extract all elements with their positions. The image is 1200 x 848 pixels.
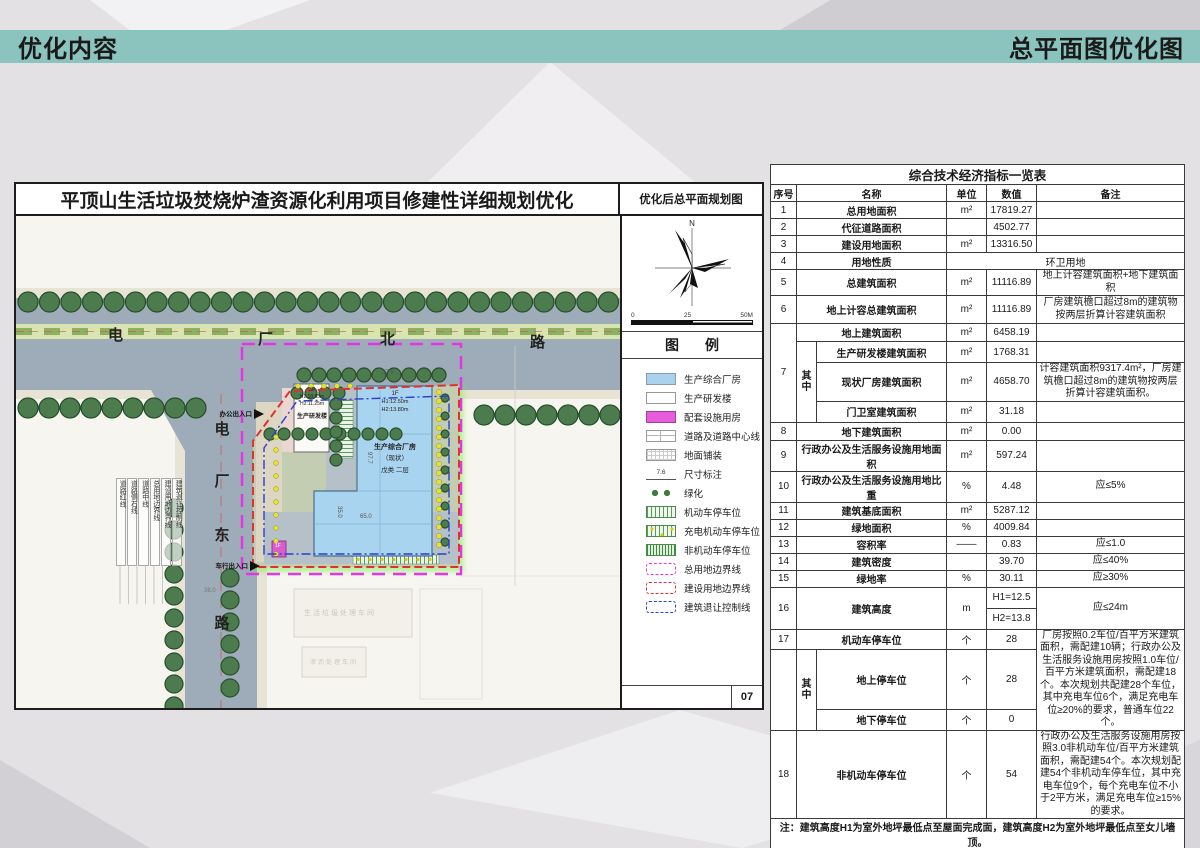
tree-icon — [436, 425, 441, 430]
table-cell: H2=13.8 — [987, 608, 1037, 629]
tree-icon — [579, 405, 599, 425]
tree-icon — [165, 609, 183, 627]
table-cell: 31.18 — [987, 401, 1037, 422]
table-cell: 地下建筑面积 — [797, 422, 947, 440]
tree-icon — [436, 398, 441, 403]
factory-building-h1: H1:12.50m — [372, 399, 418, 405]
fill-magenta-swatch-icon — [646, 411, 676, 423]
indicator-table-body: 综合技术经济指标一览表序号名称单位数值备注1总用地面积m²17819.272代征… — [771, 165, 1185, 848]
table-cell: 现状厂房建筑面积 — [817, 363, 947, 402]
page-title: 优化内容 — [0, 29, 118, 64]
tree-icon — [436, 461, 441, 466]
dimension-swatch-icon: 7.6 — [646, 468, 676, 480]
tree-icon — [600, 405, 620, 425]
line-legend-label: 建筑退让控制线 — [172, 478, 182, 566]
ev-charging-dot-icon — [380, 558, 383, 561]
tree-icon — [441, 394, 449, 402]
table-cell: m² — [947, 342, 987, 363]
tree-icon — [18, 398, 38, 418]
tree-icon — [470, 292, 490, 312]
line-legend-label: 道路侧石线 — [127, 478, 137, 566]
tree-icon — [534, 292, 554, 312]
tree-icon — [441, 520, 449, 528]
table-cell: 1 — [771, 202, 797, 219]
tree-icon — [376, 428, 388, 440]
parking-ev-swatch-icon — [646, 525, 676, 537]
road-name-char: 电 — [214, 418, 230, 439]
adjacent-building-label: 渗沥处理车间 — [310, 657, 358, 666]
parking-swatch-icon — [646, 506, 676, 518]
table-cell: 绿地率 — [797, 570, 947, 587]
table-cell: 4 — [771, 253, 797, 270]
tree-icon — [427, 292, 447, 312]
table-cell: 17 — [771, 629, 797, 649]
ev-charging-dot-icon — [356, 558, 359, 561]
background-shape — [90, 0, 310, 30]
tree-icon — [274, 435, 279, 440]
table-cell: 综合技术经济指标一览表 — [771, 165, 1185, 185]
tree-icon — [436, 524, 441, 529]
tree-icon — [491, 292, 511, 312]
table-cell: 54 — [987, 730, 1037, 819]
tree-icon — [436, 533, 441, 538]
table-cell: 17819.27 — [987, 202, 1037, 219]
legend-item: 非机动车停车位 — [646, 540, 762, 559]
legend-item-label: 生产综合厂房 — [684, 372, 741, 386]
table-cell: 地上建筑面积 — [797, 324, 947, 342]
tree-icon — [402, 368, 416, 382]
tree-icon — [441, 538, 449, 546]
legend-item: 总用地边界线 — [646, 559, 762, 578]
tree-icon — [432, 368, 446, 382]
table-cell: 28 — [987, 629, 1037, 649]
table-cell: 容积率 — [797, 536, 947, 553]
dimension-label: 35.0 — [336, 506, 342, 518]
tree-icon — [221, 679, 239, 697]
table-cell: 5287.12 — [987, 502, 1037, 519]
table-cell: 39.70 — [987, 553, 1037, 570]
ev-charging-dot-icon — [368, 558, 371, 561]
table-cell: 总建筑面积 — [797, 270, 947, 296]
tree-icon — [274, 461, 279, 466]
tree-icon — [221, 635, 239, 653]
dimension-label: 37.6 — [382, 370, 394, 376]
tree-icon — [60, 398, 80, 418]
line-legend-labels: 道路红线 道路侧石线 道路中线 总用地边界线 建设用地边界线 建筑退让控制线 — [116, 478, 183, 566]
tree-icon — [165, 587, 183, 605]
table-cell: m² — [947, 236, 987, 253]
table-cell: 个 — [947, 629, 987, 649]
table-cell: 其中 — [797, 342, 817, 423]
tree-icon — [436, 407, 441, 412]
site-plan-map: 电 厂 北 路 电 厂 东 路 3F H1:10.65m H2:11.25m 生… — [16, 216, 620, 708]
road-name-char: 厂 — [214, 470, 230, 491]
tree-icon — [436, 488, 441, 493]
tree-icon — [441, 412, 449, 420]
tree-icon — [495, 405, 515, 425]
table-cell: 应≤1.0 — [1037, 536, 1185, 553]
scale-tick: 0 — [631, 312, 635, 319]
table-cell: 注：建筑高度H1为室外地坪最低点至屋面完成面，建筑高度H2为室外地坪最低点至女儿… — [771, 819, 1185, 848]
compass-north-label: N — [689, 219, 695, 228]
table-cell: 0.83 — [987, 536, 1037, 553]
table-cell: 10 — [771, 471, 797, 502]
tree-icon — [341, 292, 361, 312]
compass-rose-icon: N — [647, 218, 737, 310]
table-cell: 3 — [771, 236, 797, 253]
tree-icon — [436, 434, 441, 439]
rnd-building-floors: 3F — [292, 387, 332, 393]
table-cell: 4009.84 — [987, 519, 1037, 536]
legend-item: 建设用地边界线 — [646, 578, 762, 597]
title-band: 优化内容 总平面图优化图 — [0, 30, 1200, 63]
tree-icon — [306, 428, 318, 440]
legend-item-label: 建筑退让控制线 — [684, 600, 751, 614]
table-cell: 其中 — [797, 649, 817, 730]
table-cell: 代征道路面积 — [797, 219, 947, 236]
tree-icon — [436, 479, 441, 484]
factory-building-floors: 1F — [372, 391, 418, 397]
table-cell: % — [947, 471, 987, 502]
table-cell: m² — [947, 363, 987, 402]
table-cell: 11116.89 — [987, 296, 1037, 324]
tree-icon — [516, 405, 536, 425]
table-cell: 4658.70 — [987, 363, 1037, 402]
legend-item-label: 非机动车停车位 — [684, 543, 751, 557]
table-cell: —— — [947, 536, 987, 553]
table-cell: % — [947, 570, 987, 587]
table-cell: 13 — [771, 536, 797, 553]
table-cell — [1037, 219, 1185, 236]
line-legend-label: 道路红线 — [116, 478, 126, 566]
table-cell: 11116.89 — [987, 270, 1037, 296]
rnd-building-h1: H1:10.65m — [292, 394, 332, 400]
table-cell — [1037, 422, 1185, 440]
rnd-building-name: 生产研发楼 — [292, 411, 332, 420]
table-cell: m² — [947, 422, 987, 440]
tree-icon — [441, 484, 449, 492]
tree-icon — [362, 292, 382, 312]
table-cell — [1037, 519, 1185, 536]
tree-icon — [319, 292, 339, 312]
legend-item-label: 尺寸标注 — [684, 467, 722, 481]
tree-icon — [330, 426, 342, 438]
table-cell: 建筑高度 — [797, 587, 947, 629]
table-cell: m² — [947, 296, 987, 324]
table-cell: m² — [947, 401, 987, 422]
table-cell: 行政办公及生活服务设施用房按照3.0非机动车位/百平方米建筑面积，需配建54个。… — [1037, 730, 1185, 819]
tree-icon — [190, 292, 210, 312]
tree-icon — [436, 506, 441, 511]
table-cell: 11 — [771, 502, 797, 519]
tree-icon — [558, 405, 578, 425]
tree-icon — [348, 428, 360, 440]
tree-icon — [390, 428, 402, 440]
tree-icon — [357, 368, 371, 382]
tree-icon — [436, 515, 441, 520]
parking-bike-swatch-icon — [646, 544, 676, 556]
table-cell: 地上计容建筑面积+地下建筑面积 — [1037, 270, 1185, 296]
scale-bar: 0 25 50M — [631, 312, 753, 325]
road-name-char: 路 — [530, 331, 545, 352]
tree-icon — [362, 428, 374, 440]
table-cell: 2 — [771, 219, 797, 236]
table-cell: 28 — [987, 649, 1037, 709]
legend-item: 机动车停车位 — [646, 502, 762, 521]
road-name-char: 北 — [380, 328, 395, 349]
table-cell: 18 — [771, 730, 797, 819]
legend-item: 道路及道路中心线 — [646, 426, 762, 445]
tree-icon — [221, 657, 239, 675]
road-name-char: 厂 — [258, 328, 273, 349]
table-cell — [947, 219, 987, 236]
tree-icon — [147, 292, 167, 312]
tree-icon — [441, 466, 449, 474]
table-cell: 数值 — [987, 185, 1037, 202]
legend-item: 充电机动车停车位 — [646, 521, 762, 540]
tree-icon — [165, 565, 183, 583]
plan-title-bar: 平顶山生活垃圾焚烧炉渣资源化利用项目修建性详细规划优化 优化后总平面规划图 — [16, 184, 762, 216]
tree-icon — [436, 470, 441, 475]
tree-icon — [441, 430, 449, 438]
table-cell — [947, 553, 987, 570]
dash-magenta-swatch-icon — [646, 563, 676, 575]
tree-icon — [436, 497, 441, 502]
tree-icon — [556, 292, 576, 312]
legend-item-label: 建设用地边界线 — [684, 581, 751, 595]
legend-title: 图例 — [622, 331, 762, 359]
slide: 优化内容 总平面图优化图 平顶山生活垃圾焚烧炉渣资源化利用项目修建性详细规划优化… — [0, 0, 1200, 848]
legend-item: 生产研发楼 — [646, 388, 762, 407]
road-swatch-icon — [646, 430, 676, 442]
tree-icon — [278, 428, 290, 440]
legend-item-label: 道路及道路中心线 — [684, 429, 760, 443]
tree-icon — [330, 454, 342, 466]
vehicle-entrance-label: 车行出入口 — [204, 560, 248, 570]
compass-box: N — [622, 216, 762, 312]
plan-title: 平顶山生活垃圾焚烧炉渣资源化利用项目修建性详细规划优化 — [16, 184, 620, 214]
table-cell: 门卫室建筑面积 — [817, 401, 947, 422]
tree-icon — [436, 416, 441, 421]
table-cell: 生产研发楼建筑面积 — [817, 342, 947, 363]
table-cell: m² — [947, 502, 987, 519]
table-cell: 30.11 — [987, 570, 1037, 587]
fill-white-swatch-icon — [646, 392, 676, 404]
table-cell: 13316.50 — [987, 236, 1037, 253]
table-cell: 4502.77 — [987, 219, 1037, 236]
table-cell: 地上计容总建筑面积 — [797, 296, 947, 324]
tree-icon — [417, 368, 431, 382]
adjacent-building-label: 生活垃圾处理车间 — [304, 608, 376, 618]
tree-icon — [513, 292, 533, 312]
tree-icon — [384, 292, 404, 312]
table-cell: 1768.31 — [987, 342, 1037, 363]
plan-subtitle: 优化后总平面规划图 — [620, 184, 762, 214]
ev-charging-dot-icon — [404, 558, 407, 561]
table-cell — [1037, 342, 1185, 363]
tree-icon — [186, 398, 206, 418]
tree-icon — [61, 292, 81, 312]
table-cell: 5 — [771, 270, 797, 296]
table-cell: 建设用地面积 — [797, 236, 947, 253]
legend-item-label: 地面铺装 — [684, 448, 722, 462]
road-name-char: 电 — [108, 324, 123, 345]
dimension-label: 65.0 — [360, 514, 372, 520]
table-cell: 应≥30% — [1037, 570, 1185, 587]
legend-item-label: 配套设施用房 — [684, 410, 741, 424]
table-cell: % — [947, 519, 987, 536]
table-cell: 应≤5% — [1037, 471, 1185, 502]
tree-icon — [165, 631, 183, 649]
legend-item-label: 生产研发楼 — [684, 391, 732, 405]
tree-icon — [448, 292, 468, 312]
legend-item: 生产综合厂房 — [646, 369, 762, 388]
table-cell: 名称 — [797, 185, 947, 202]
factory-building-h2: H2:13.80m — [372, 407, 418, 413]
dimension-label: 38.0 — [204, 588, 216, 594]
table-cell: 0 — [987, 709, 1037, 730]
table-cell: 绿地面积 — [797, 519, 947, 536]
table-cell: 个 — [947, 730, 987, 819]
tree-icon — [312, 368, 326, 382]
page-subtitle: 总平面图优化图 — [1009, 29, 1200, 64]
table-cell — [1037, 440, 1185, 471]
table-cell: 环卫用地 — [947, 253, 1185, 270]
tree-icon — [212, 292, 232, 312]
tree-icon — [169, 292, 189, 312]
tree-icon — [297, 368, 311, 382]
tree-icon — [221, 569, 239, 587]
legend-sidebar: N 0 25 50M 图例 生产综合厂房生产研发楼配套设施用房道路及道路中心线地… — [620, 216, 762, 708]
trees-swatch-icon — [646, 487, 676, 499]
legend-item: 建筑退让控制线 — [646, 597, 762, 616]
legend-item-label: 充电机动车停车位 — [684, 524, 760, 538]
table-cell — [1037, 236, 1185, 253]
tree-icon — [274, 487, 279, 492]
tree-icon — [274, 474, 279, 479]
table-cell — [1037, 401, 1185, 422]
site-plan-drawing — [16, 216, 620, 708]
tree-icon — [298, 292, 318, 312]
tree-icon — [255, 292, 275, 312]
page-number: 07 — [731, 686, 762, 708]
tree-icon — [274, 500, 279, 505]
tree-icon — [165, 675, 183, 693]
table-cell: 单位 — [947, 185, 987, 202]
tree-icon — [441, 502, 449, 510]
table-cell: 14 — [771, 553, 797, 570]
table-cell — [1037, 502, 1185, 519]
tree-icon — [436, 389, 441, 394]
legend-item: 地面铺装 — [646, 445, 762, 464]
legend-item-label: 机动车停车位 — [684, 505, 741, 519]
tree-icon — [39, 398, 59, 418]
rnd-building-h2: H2:11.25m — [292, 401, 332, 407]
tree-icon — [276, 292, 296, 312]
road-name-char: 东 — [214, 524, 230, 545]
dimension-label: 97.7 — [366, 452, 372, 464]
tree-icon — [274, 513, 279, 518]
table-cell: 6 — [771, 296, 797, 324]
tree-icon — [104, 292, 124, 312]
scale-tick: 25 — [684, 312, 691, 319]
table-cell: 计容建筑面积9317.4m²，厂房建筑檐口超过8m的建筑物按两层折算计容建筑面积… — [1037, 363, 1185, 402]
legend-item-label: 总用地边界线 — [684, 562, 741, 576]
table-cell: 597.24 — [987, 440, 1037, 471]
tree-icon — [274, 526, 279, 531]
table-cell: m² — [947, 270, 987, 296]
tree-icon — [436, 542, 441, 547]
ev-charging-dot-icon — [416, 558, 419, 561]
tree-icon — [221, 591, 239, 609]
table-cell: 地上停车位 — [817, 649, 947, 709]
table-cell — [1037, 324, 1185, 342]
tree-icon — [40, 292, 60, 312]
ev-charging-dot-icon — [392, 558, 395, 561]
indicator-table: 综合技术经济指标一览表序号名称单位数值备注1总用地面积m²17819.272代征… — [770, 164, 1185, 848]
table-cell: 16 — [771, 587, 797, 629]
tree-icon — [102, 398, 122, 418]
table-cell: 4.48 — [987, 471, 1037, 502]
table-cell: 序号 — [771, 185, 797, 202]
legend-item: 7.6尺寸标注 — [646, 464, 762, 483]
table-cell: m² — [947, 324, 987, 342]
tree-icon — [18, 292, 38, 312]
paving-swatch-icon — [646, 449, 676, 461]
line-legend-label: 总用地边界线 — [150, 478, 160, 566]
table-cell: 厂房建筑檐口超过8m的建筑物按两层折算计容建筑面积 — [1037, 296, 1185, 324]
dash-blue-swatch-icon — [646, 601, 676, 613]
tree-icon — [123, 398, 143, 418]
tree-icon — [165, 653, 183, 671]
table-cell: 用地性质 — [797, 253, 947, 270]
road-name-char: 路 — [214, 612, 230, 633]
table-cell: 行政办公及生活服务设施用地比重 — [797, 471, 947, 502]
tree-icon — [233, 292, 253, 312]
table-cell: 应≤40% — [1037, 553, 1185, 570]
line-legend-label: 建设用地边界线 — [161, 478, 171, 566]
tree-icon — [83, 292, 103, 312]
table-cell — [771, 649, 797, 730]
tree-icon — [342, 368, 356, 382]
tree-icon — [274, 448, 279, 453]
gatehouse-floors: 1F — [275, 543, 281, 549]
tree-icon — [144, 398, 164, 418]
table-cell: 15 — [771, 570, 797, 587]
table-cell: m² — [947, 440, 987, 471]
background-shape — [0, 760, 150, 848]
table-cell: 总用地面积 — [797, 202, 947, 219]
tree-icon — [599, 292, 619, 312]
tree-icon — [436, 452, 441, 457]
tree-icon — [335, 384, 340, 389]
tree-icon — [436, 443, 441, 448]
tree-icon — [474, 405, 494, 425]
table-cell: 应≤24m — [1037, 587, 1185, 629]
table-cell: 7 — [771, 324, 797, 423]
tree-icon — [327, 368, 341, 382]
table-cell — [1037, 202, 1185, 219]
factory-building-class: 戊类 二层 — [362, 464, 428, 474]
tree-icon — [165, 398, 185, 418]
legend-item-label: 绿化 — [684, 486, 703, 500]
table-cell: 机动车停车位 — [797, 629, 947, 649]
titleblock-strip: 07 — [622, 685, 762, 708]
line-legend-label: 道路中线 — [138, 478, 148, 566]
tree-icon — [405, 292, 425, 312]
tree-icon — [537, 405, 557, 425]
plan-panel: 平顶山生活垃圾焚烧炉渣资源化利用项目修建性详细规划优化 优化后总平面规划图 — [14, 182, 764, 710]
